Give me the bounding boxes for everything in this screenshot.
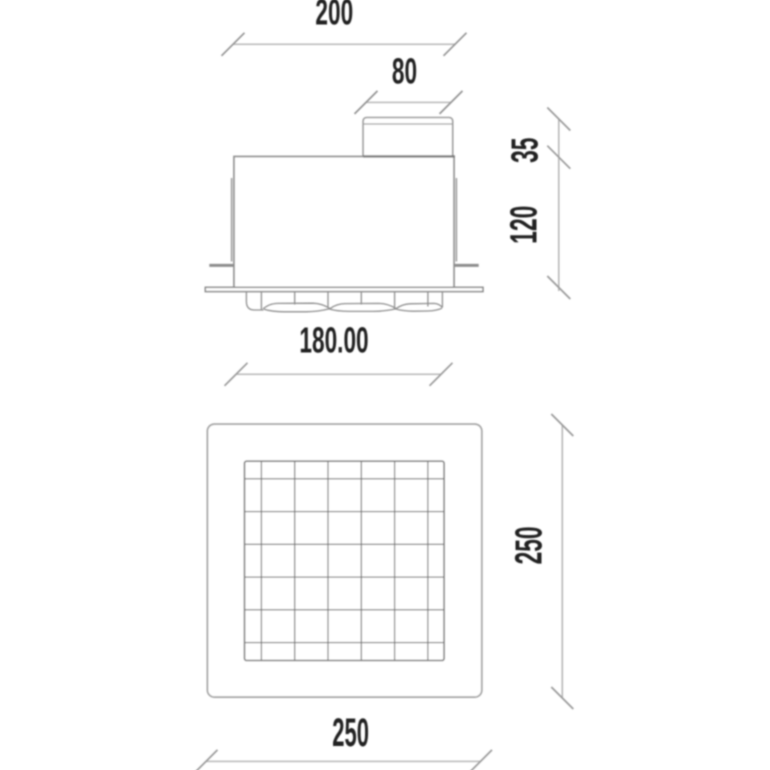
- svg-text:200: 200: [315, 0, 353, 33]
- svg-text:35: 35: [503, 138, 545, 163]
- svg-text:180.00: 180.00: [299, 321, 368, 361]
- svg-text:250: 250: [332, 710, 369, 755]
- svg-text:80: 80: [392, 52, 417, 92]
- svg-text:250: 250: [507, 526, 549, 564]
- svg-text:120: 120: [502, 206, 544, 244]
